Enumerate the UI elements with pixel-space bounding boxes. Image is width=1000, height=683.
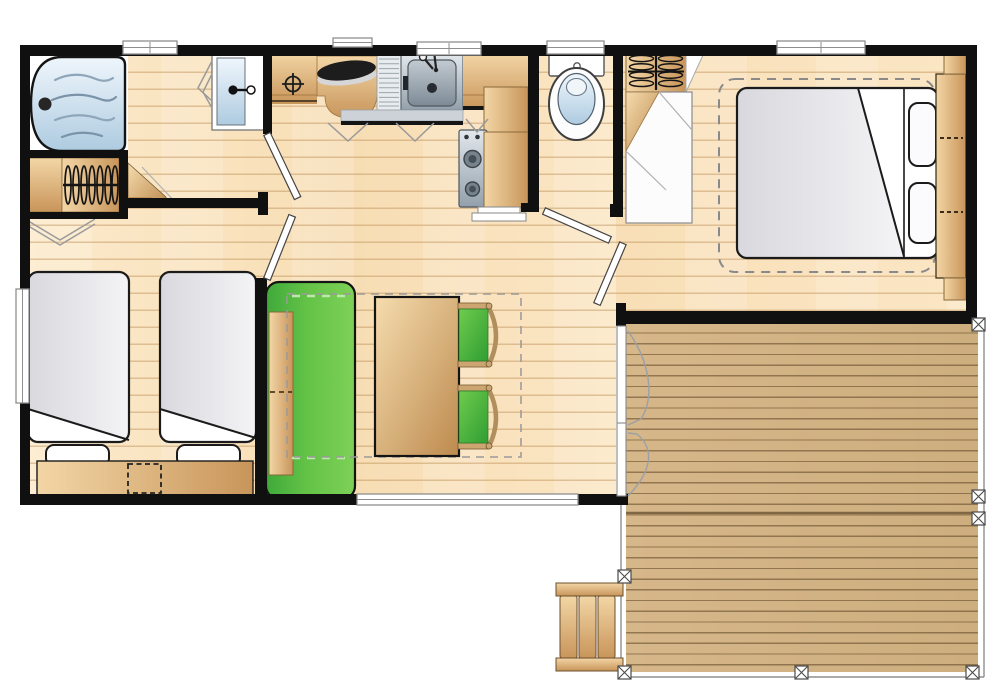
mirror-marks: [198, 61, 212, 108]
wall-wc-left-foot: [521, 203, 539, 212]
toilet: [549, 52, 604, 140]
pillow: [909, 103, 936, 166]
door-bathroom: [264, 132, 301, 199]
headboard: [936, 74, 966, 278]
single-bed-right: [160, 272, 256, 466]
wall-bedroom-bottom: [617, 311, 977, 324]
living-dining: [266, 282, 521, 499]
plinth: [472, 207, 526, 221]
window-wc: [547, 41, 604, 54]
wall-left: [20, 45, 30, 505]
dining-chair-top: [458, 303, 496, 367]
window-bedroom: [777, 41, 865, 54]
double-bed: [737, 88, 938, 258]
bench-sofa: [266, 282, 355, 499]
counter-apron: [341, 110, 463, 121]
post-icon: [618, 666, 631, 679]
refrigerator: [484, 132, 528, 207]
bathtub-drain: [39, 98, 52, 111]
post-icon: [972, 512, 985, 525]
wall-cabinet: [484, 87, 528, 132]
deck-railing: [621, 321, 984, 677]
dining-table: [375, 297, 459, 456]
dressing-shelf: [626, 92, 692, 223]
window-twin-bedroom: [16, 289, 29, 403]
terrace-stairs: [556, 583, 623, 671]
wall-frenchdoor-stub: [616, 303, 626, 326]
post-icon: [795, 666, 808, 679]
wall-bath-kitchen: [263, 45, 272, 134]
twin-bedroom: [28, 272, 256, 497]
french-door-swing: [628, 433, 649, 496]
sink-drain: [427, 83, 437, 93]
counter-front-edge: [341, 121, 463, 125]
sink-side-tray: [403, 76, 408, 90]
master-bedroom: [626, 52, 966, 300]
wc-room: [549, 52, 604, 140]
floorplan-canvas: [0, 0, 1000, 683]
door-wc: [543, 208, 612, 243]
cooktop: [459, 130, 487, 207]
post-icon: [972, 318, 985, 331]
wall-sofa-back: [255, 278, 267, 495]
window-kitchen: [417, 42, 481, 55]
wardrobe-shelf: [28, 158, 62, 212]
headboard-block: [944, 278, 966, 300]
wall-wardrobe-bottom: [20, 212, 128, 219]
wall-hall: [127, 198, 261, 208]
wall-right: [966, 45, 977, 324]
deck-posts: [618, 318, 985, 679]
door-master-bedroom: [594, 242, 626, 305]
wall-wardrobe-right: [119, 150, 128, 218]
wardrobe-fold-mark: [686, 53, 704, 92]
dining-chair-bottom: [458, 385, 496, 449]
floorplan-drawing: [0, 0, 1000, 683]
post-icon: [972, 490, 985, 503]
door-twin-bedroom: [264, 215, 296, 281]
wall-tub-divider: [20, 150, 128, 158]
post-icon: [966, 666, 979, 679]
wall-wc-right-foot: [610, 204, 623, 217]
pillow: [909, 183, 936, 243]
sofa-back-panel: [269, 312, 293, 475]
single-bed-left: [28, 272, 129, 466]
bifold-marks: [25, 219, 95, 245]
wall-wc-left: [528, 45, 539, 208]
kitchen: [269, 48, 528, 222]
twin-headboard: [37, 461, 253, 497]
wall-wc-right: [613, 45, 623, 207]
window-bathroom: [123, 41, 177, 54]
post-icon: [618, 570, 631, 583]
window-kitchen-small: [333, 38, 372, 47]
french-door: [617, 326, 649, 496]
window-living: [357, 494, 578, 505]
wall-hall-cap: [258, 192, 268, 215]
french-door-swing: [628, 331, 649, 425]
